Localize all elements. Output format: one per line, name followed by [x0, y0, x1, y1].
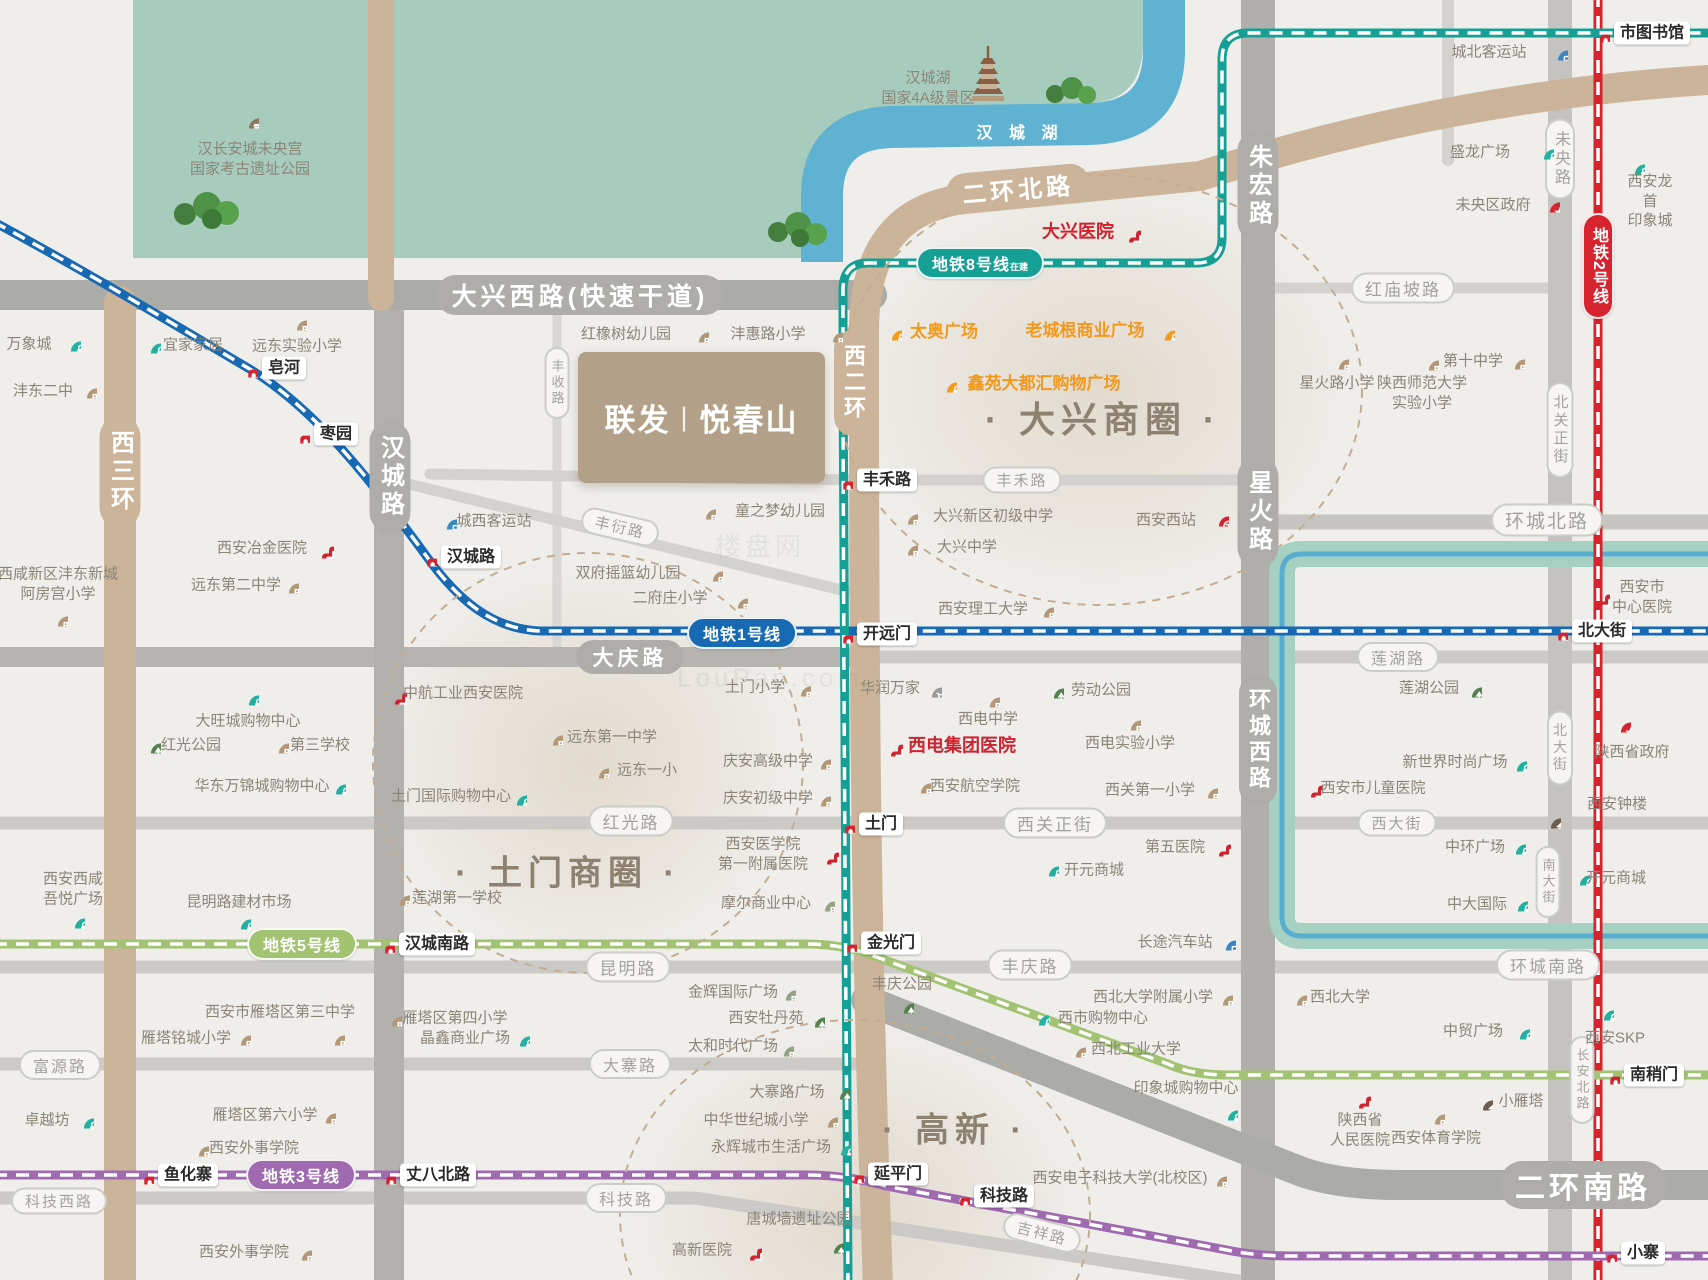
shopping-bag-icon: [1027, 1004, 1049, 1031]
school-icon: [789, 675, 811, 702]
poi-label: 西安电子科技大学(北校区): [1033, 1168, 1208, 1188]
hospital-cross-icon: [736, 1235, 762, 1266]
poi-label: 二府庄小学: [632, 588, 707, 608]
metro-station-icon: [832, 625, 853, 644]
poi-label: 西安市儿童医院: [1320, 778, 1425, 798]
poi-label: 高新医院: [672, 1240, 732, 1260]
poi-label: 西安外事学院: [209, 1138, 299, 1158]
hospital-cross-icon: [308, 533, 334, 564]
metro-station: 开远门: [832, 623, 917, 646]
metro-station-icon: [834, 815, 855, 834]
poi-label: 西电集团医院: [908, 734, 1016, 757]
school-icon: [290, 1239, 312, 1266]
poi-label: 西电实验小学: [1085, 733, 1175, 753]
metro-station-icon: [375, 1166, 396, 1185]
metro-station-label: 延平门: [868, 1163, 928, 1186]
shopping-bag-icon: [508, 1025, 530, 1052]
poi-label: 金辉国际广场: [688, 982, 778, 1002]
poi-label: 宜家家居: [163, 335, 223, 355]
metro-station-label: 小寨: [1621, 1242, 1665, 1265]
poi-label: 昆明路建材市场: [186, 892, 291, 912]
park-icon: [828, 1078, 850, 1105]
road-label: 富源路: [19, 1050, 101, 1080]
road-label: 环城西路: [1239, 674, 1277, 806]
school-icon: [380, 1005, 402, 1032]
school-icon: [388, 884, 410, 911]
poi-label: 西安西站: [1136, 510, 1196, 530]
poi-label: 华润万家: [860, 678, 920, 698]
tower-landmark-icon: [1539, 807, 1561, 834]
poi-label: 庆安初级中学: [723, 788, 813, 808]
poi-label: 西安市雁塔区第三中学: [205, 1002, 355, 1022]
metro-station-label: 丈八北路: [400, 1164, 476, 1187]
poi-label: 沣东二中: [13, 381, 73, 401]
shopping-bag-icon: [1506, 890, 1528, 917]
railway-station-icon: [1207, 505, 1229, 532]
bus-station-icon: [435, 508, 457, 535]
metro-station: 鱼化寨: [133, 1164, 218, 1187]
school-icon: [1064, 1036, 1086, 1063]
poi-label: 华东万锦城购物中心: [194, 776, 329, 796]
poi-label: 莲湖第一学校: [412, 888, 502, 908]
poi-label: 陕西师范大学 实验小学: [1377, 374, 1467, 413]
park-icon: [892, 992, 914, 1019]
poi-label: 中贸广场: [1443, 1021, 1503, 1041]
poi-label: 中大国际: [1447, 894, 1507, 914]
hospital-cross-icon: [877, 731, 903, 762]
school-icon: [821, 321, 843, 348]
poi-label: 红光公园: [161, 735, 221, 755]
poi-label: 大兴医院: [1042, 220, 1114, 243]
road-label: 星火路: [1238, 456, 1279, 568]
metro-station-icon: [843, 1165, 864, 1184]
poi-label: 开元商城: [1064, 860, 1124, 880]
road-label: 大庆路: [577, 640, 684, 674]
poi-label: 远东一小: [617, 760, 677, 780]
metro-station-icon: [1599, 1066, 1620, 1085]
shopping-bag-icon: [1504, 833, 1526, 860]
school-icon: [541, 724, 563, 751]
school-icon: [75, 377, 97, 404]
lake-label: 汉 城 湖: [977, 119, 1064, 143]
metro-station-label: 开远门: [857, 623, 917, 646]
metro-station-icon: [1547, 622, 1568, 641]
road-label: 朱宏路: [1238, 130, 1279, 242]
road-label: 丰禾路: [982, 467, 1061, 494]
poi-label: 盛龙广场: [1450, 142, 1510, 162]
school-icon: [1417, 349, 1439, 376]
project-name: 悦春山: [700, 395, 799, 440]
school-icon: [694, 498, 716, 525]
school-icon: [229, 1024, 251, 1051]
metro-station: 枣园: [289, 423, 358, 446]
road-label: 大兴西路(快速干道): [436, 275, 725, 315]
poi-label: 新世界时尚广场: [1402, 752, 1507, 772]
poi-label: 星火路小学: [1299, 373, 1374, 393]
metro-station: 市图书馆: [1589, 22, 1690, 45]
poi-label: 雁塔区第四小学: [402, 1008, 507, 1028]
park-icon: [1042, 677, 1064, 704]
school-icon: [1196, 777, 1218, 804]
poi-label: 卓越坊: [24, 1110, 69, 1130]
poi-label: 远东第二中学: [191, 575, 281, 595]
school-icon: [1205, 1165, 1227, 1192]
park-icon: [803, 1006, 825, 1033]
poi-label: 唐城墙遗址公园: [746, 1209, 851, 1229]
poi-label: 劳动公园: [1071, 680, 1131, 700]
shopping-bag-icon: [1505, 750, 1527, 777]
road-label: 汉城路: [370, 421, 411, 533]
poi-label: 太和时代广场: [688, 1036, 778, 1056]
poi-label: 小雁塔: [1498, 1091, 1543, 1111]
metro-station-label: 丰禾路: [857, 469, 917, 492]
poi-label: 西安钟楼: [1587, 794, 1647, 814]
poi-label: 中环广场: [1445, 837, 1505, 857]
poi-label: 鑫苑大都汇购物广场: [968, 373, 1121, 395]
road-label: 科技路: [585, 1183, 667, 1213]
road-label: 大寨路: [589, 1049, 671, 1079]
school-icon: [896, 503, 918, 530]
metro-station: 北大街: [1547, 620, 1632, 643]
park-icon: [1460, 676, 1482, 703]
poi-label: 陕西省 人民医院: [1330, 1111, 1390, 1150]
road-label: 科技西路: [11, 1188, 107, 1215]
poi-label: 大兴新区初级中学: [933, 506, 1053, 526]
poi-label: 双府摇篮幼儿园: [575, 563, 680, 583]
metro-station-label: 金光门: [861, 932, 921, 955]
metro-station: 南稍门: [1599, 1064, 1684, 1087]
school-icon: [726, 587, 748, 614]
poi-label: 大寨路广场: [749, 1082, 824, 1102]
hospital-cross-icon: [813, 839, 839, 870]
metro-line-badge: 地铁8号线在建: [916, 247, 1044, 279]
poi-label: 童之梦幼儿园: [735, 501, 825, 521]
metro-station: 金光门: [836, 932, 921, 955]
metro-station-icon: [237, 359, 258, 378]
school-icon: [46, 605, 68, 632]
school-icon: [267, 732, 289, 759]
metro-line-badge: 地铁5号线: [247, 928, 357, 960]
government-star-icon: [1609, 711, 1631, 738]
metro-station: 汉城南路: [374, 933, 475, 956]
road-label: 莲湖路: [1357, 642, 1439, 672]
poi-label: 西北大学附属小学: [1093, 987, 1213, 1007]
metro-station: 皂河: [237, 357, 306, 380]
school-icon: [285, 309, 307, 336]
hospital-cross-icon: [1115, 217, 1141, 248]
metro-station-icon: [832, 471, 853, 490]
metro-station-label: 南稍门: [1624, 1064, 1684, 1087]
road-label: 长安北路: [1570, 1036, 1595, 1124]
metro-station-label: 汉城南路: [399, 933, 475, 956]
metro-station-icon: [133, 1166, 154, 1185]
shopping-bag-icon: [935, 371, 957, 398]
business-area-label: · 高新 ·: [882, 1103, 1028, 1152]
road-label: 红庙坡路: [1351, 273, 1455, 304]
poi-label: 晶鑫商业广场: [420, 1028, 510, 1048]
project-marker: 联发 | 悦春山: [578, 352, 825, 483]
metro-station: 土门: [834, 813, 903, 836]
school-icon: [687, 321, 709, 348]
school-icon: [1211, 984, 1233, 1011]
poi-label: 西安航空学院: [930, 776, 1020, 796]
shopping-cart-icon: [920, 676, 942, 703]
poi-label: 城北客运站: [1451, 42, 1526, 62]
poi-label: 永辉城市生活广场: [711, 1137, 831, 1157]
shopping-bag-icon: [1532, 138, 1554, 165]
poi-label: 西安理工大学: [938, 599, 1028, 619]
poi-label: 西关第一小学: [1105, 780, 1195, 800]
poi-label: 城西客运站: [456, 511, 531, 531]
metro-station: 延平门: [843, 1163, 928, 1186]
bus-station-icon: [1546, 39, 1568, 66]
shopping-bag-icon: [829, 1134, 851, 1161]
road-label: 二环南路: [1499, 1161, 1667, 1209]
poi-label: 莲湖公园: [1399, 678, 1459, 698]
metro-station-label: 土门: [859, 813, 903, 836]
shopping-bag-icon: [1153, 319, 1175, 346]
school-icon: [1285, 984, 1307, 1011]
watermark: 楼盘网: [715, 527, 805, 564]
metro-station-icon: [949, 1187, 970, 1206]
poi-label: 西安冶金医院: [217, 538, 307, 558]
school-icon: [1503, 348, 1525, 375]
metro-station-label: 科技路: [974, 1185, 1034, 1208]
shopping-bag-icon: [59, 330, 81, 357]
poi-label: 汉长安城未央宫 国家考古遗址公园: [190, 140, 310, 179]
poi-label: 汉城湖 国家4A级景区: [881, 69, 974, 108]
poi-label: 大旺城购物中心: [195, 711, 300, 731]
metro-station: 汉城路: [416, 546, 501, 569]
school-icon: [816, 1106, 838, 1133]
project-brand: 联发: [604, 395, 670, 440]
metro-station-icon: [416, 548, 437, 567]
poi-label: 陕西省政府: [1594, 742, 1669, 762]
road-label: 南大街: [1536, 846, 1561, 918]
poi-label: 西安龙首 印象城: [1621, 172, 1679, 231]
metro-station-label: 鱼化寨: [158, 1164, 218, 1187]
school-icon: [1327, 348, 1349, 375]
badge-suffix: 在建: [1010, 262, 1028, 272]
metro-station-icon: [374, 935, 395, 954]
metro-line-badge: 地铁2号线: [1582, 213, 1614, 319]
poi-label: 印象城购物中心: [1133, 1078, 1238, 1098]
road-label: 丰收路: [545, 347, 570, 419]
poi-label: 西市购物中心: [1058, 1008, 1148, 1028]
hospital-cross-icon: [1345, 1083, 1371, 1114]
poi-label: 大兴中学: [937, 537, 997, 557]
metro-station-icon: [289, 425, 310, 444]
poi-label: 雁塔铭城小学: [141, 1028, 231, 1048]
metro-station-label: 北大街: [1572, 620, 1632, 643]
poi-label: 第十中学: [1443, 351, 1503, 371]
metro-station: 丰禾路: [832, 469, 917, 492]
road-label: 西大街: [1357, 810, 1436, 837]
shopping-bag-icon: [1037, 855, 1059, 882]
poi-label: 第五医院: [1145, 837, 1205, 857]
poi-label: 远东实验小学: [252, 336, 342, 356]
poi-label: 万象城: [6, 334, 51, 354]
tower-landmark-icon: [1471, 1089, 1493, 1116]
shopping-bag-icon: [72, 1107, 94, 1134]
school-icon: [187, 1135, 209, 1162]
shopping-bag-icon: [880, 319, 902, 346]
road-label: 西三环: [100, 416, 141, 528]
road-label: 环城北路: [1491, 504, 1603, 537]
mall-building-icon: [813, 890, 835, 917]
metro-station: 小寨: [1596, 1242, 1665, 1265]
poi-label: 西电中学: [958, 709, 1018, 729]
road-label: 环城南路: [1496, 950, 1600, 981]
park-icon: [139, 732, 161, 759]
school-icon: [896, 534, 918, 561]
metro-line-badge: 地铁3号线: [246, 1159, 356, 1191]
school-icon: [587, 757, 609, 784]
shopping-bag-icon: [1592, 999, 1614, 1026]
poi-label: 西安医学院 第一附属医院: [718, 835, 808, 874]
metro-station-label: 皂河: [262, 357, 306, 380]
road-label: 北关正街: [1547, 382, 1574, 478]
metro-station-icon: [1589, 24, 1610, 43]
poi-label: 第三学校: [290, 735, 350, 755]
poi-label: 中航工业西安医院: [403, 683, 523, 703]
poi-label: 西安体育学院: [1391, 1128, 1481, 1148]
poi-label: 开元商城: [1586, 868, 1646, 888]
metro-station-label: 市图书馆: [1614, 22, 1690, 45]
poi-label: 丰庆公园: [872, 974, 932, 994]
business-area-label: · 大兴商圈 ·: [985, 391, 1221, 443]
poi-label: 沣惠路小学: [730, 324, 805, 344]
road-label: 昆明路: [586, 952, 671, 983]
metro-station-icon: [1596, 1244, 1617, 1263]
shopping-bag-icon: [63, 907, 85, 934]
hospital-cross-icon: [1205, 831, 1231, 862]
metro-station: 丈八北路: [375, 1164, 476, 1187]
school-icon: [1119, 709, 1141, 736]
government-star-icon: [1538, 191, 1560, 218]
heritage-gate-icon: [237, 107, 259, 134]
poi-label: 太奥广场: [910, 321, 978, 343]
poi-label: 西北工业大学: [1091, 1039, 1181, 1059]
school-icon: [1032, 596, 1054, 623]
poi-label: 西安牡丹苑: [728, 1008, 803, 1028]
poi-label: 摩尔商业中心: [721, 893, 811, 913]
metro-line-badge: 地铁1号线: [687, 617, 797, 649]
poi-label: 西安SKP: [1585, 1028, 1645, 1048]
poi-label: 远东第一中学: [567, 727, 657, 747]
poi-label: 雁塔区第六小学: [212, 1105, 317, 1125]
shopping-bag-icon: [1508, 1018, 1530, 1045]
shopping-bag-icon: [237, 684, 259, 711]
poi-label: 西北大学: [1310, 987, 1370, 1007]
road-label: 红光路: [589, 806, 674, 837]
poi-label: 长途汽车站: [1137, 932, 1212, 952]
school-icon: [701, 560, 723, 587]
poi-label: 中华世纪城小学: [703, 1110, 808, 1130]
business-area-label: · 土门商圈 ·: [455, 846, 681, 895]
shopping-bag-icon: [1216, 1099, 1238, 1126]
hospital-cross-icon: [1297, 772, 1323, 803]
poi-label: 老城根商业广场: [1026, 320, 1145, 342]
road-label: 西关正街: [1003, 808, 1107, 839]
metro-station-label: 汉城路: [441, 546, 501, 569]
project-divider: |: [680, 402, 689, 433]
school-icon: [909, 772, 931, 799]
road-label: 北大街: [1547, 711, 1573, 786]
bus-station-icon: [1214, 929, 1236, 956]
poi-label: 土门国际购物中心: [391, 786, 511, 806]
poi-label: 西安市 中心医院: [1612, 578, 1672, 617]
poi-label: 红橡树幼儿园: [581, 324, 671, 344]
poi-label: 西安西咸 吾悦广场: [43, 870, 103, 909]
poi-label: 西安外事学院: [199, 1242, 289, 1262]
metro-station: 科技路: [949, 1185, 1034, 1208]
poi-label: 庆安高级中学: [723, 751, 813, 771]
shopping-bag-icon: [139, 332, 161, 359]
school-icon: [323, 1024, 345, 1051]
poi-label: 土门小学: [725, 677, 785, 697]
road-label: 丰庆路: [988, 950, 1073, 981]
metro-station-icon: [836, 934, 857, 953]
school-icon: [1423, 1103, 1445, 1130]
metro-station-label: 枣园: [314, 423, 358, 446]
poi-label: 未央区政府: [1455, 195, 1530, 215]
park-icon: [822, 1232, 844, 1259]
location-map: 联发 | 悦春山 · 大兴商圈 ·· 土门商圈 ·· 高新 ·汉 城 湖大兴西路…: [0, 0, 1708, 1280]
hospital-cross-icon: [1584, 581, 1610, 612]
poi-label: 西咸新区沣东新城 阿房宫小学: [0, 565, 118, 604]
